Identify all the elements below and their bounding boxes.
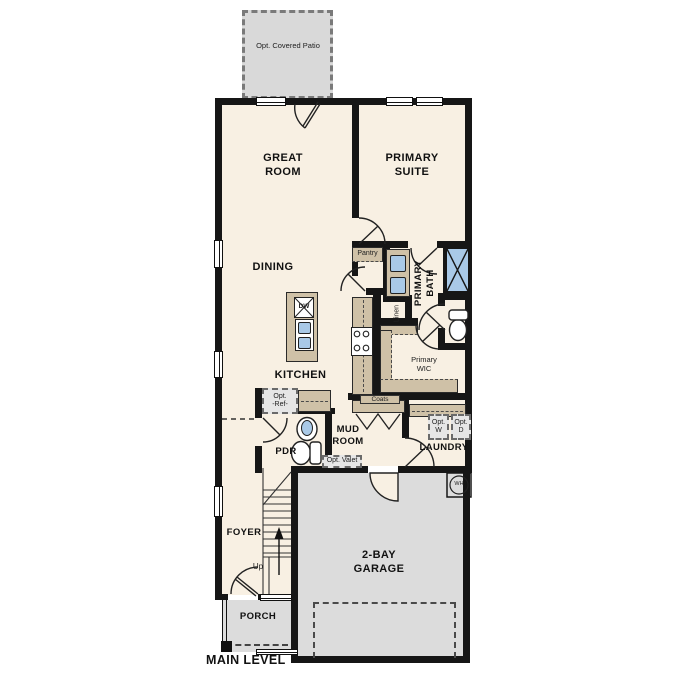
stairs-up-arrow-head <box>275 527 284 539</box>
wic-door-leaf <box>422 325 440 342</box>
garage-entry-door <box>370 473 398 501</box>
staircase <box>263 468 291 594</box>
bath-toilet-bowl <box>450 320 467 341</box>
foyer-label: FOYER <box>223 527 265 539</box>
pantry-label: Pantry <box>352 250 383 258</box>
mud-room-label: MUD ROOM <box>325 424 371 448</box>
pdr-label: PDR <box>270 446 302 458</box>
laundry-label: LAUNDRY <box>413 442 475 454</box>
porch-label: PORCH <box>232 611 284 623</box>
pdr-toilet-tank <box>310 442 321 464</box>
dining-label: DINING <box>238 261 308 275</box>
primary-wic-label: Primary WIC <box>398 356 450 373</box>
toilet-door-leaf <box>426 312 445 330</box>
linen-label: Linen <box>394 298 403 330</box>
floor-plan: Opt. Covered Patio <box>0 0 687 687</box>
primary-suite-label: PRIMARY SUITE <box>370 152 454 180</box>
dishwasher-label: DW <box>295 303 313 310</box>
front-door-leaf <box>235 577 258 596</box>
water-heater-label: WH <box>452 481 466 487</box>
garage-label: 2-BAY GARAGE <box>338 549 420 577</box>
main-level-title: MAIN LEVEL <box>206 653 298 669</box>
great-room-label: GREAT ROOM <box>243 152 323 180</box>
coats-label: Coats <box>360 395 400 404</box>
stove-burners <box>354 331 369 351</box>
pdr-sink-basin <box>302 421 313 436</box>
hall-door-leaf <box>359 226 378 244</box>
pantry-door-leaf <box>348 274 365 291</box>
shower-x <box>447 249 468 291</box>
primary-bath-label: PRIMARY BATH <box>413 252 439 314</box>
kitchen-label: KITCHEN <box>258 369 343 383</box>
fixtures-layer <box>0 0 687 687</box>
bath-toilet-tank <box>449 310 468 320</box>
up-label: Up <box>247 562 269 571</box>
pdr-door-leaf <box>263 418 280 435</box>
patio-door-leaf <box>303 102 320 128</box>
